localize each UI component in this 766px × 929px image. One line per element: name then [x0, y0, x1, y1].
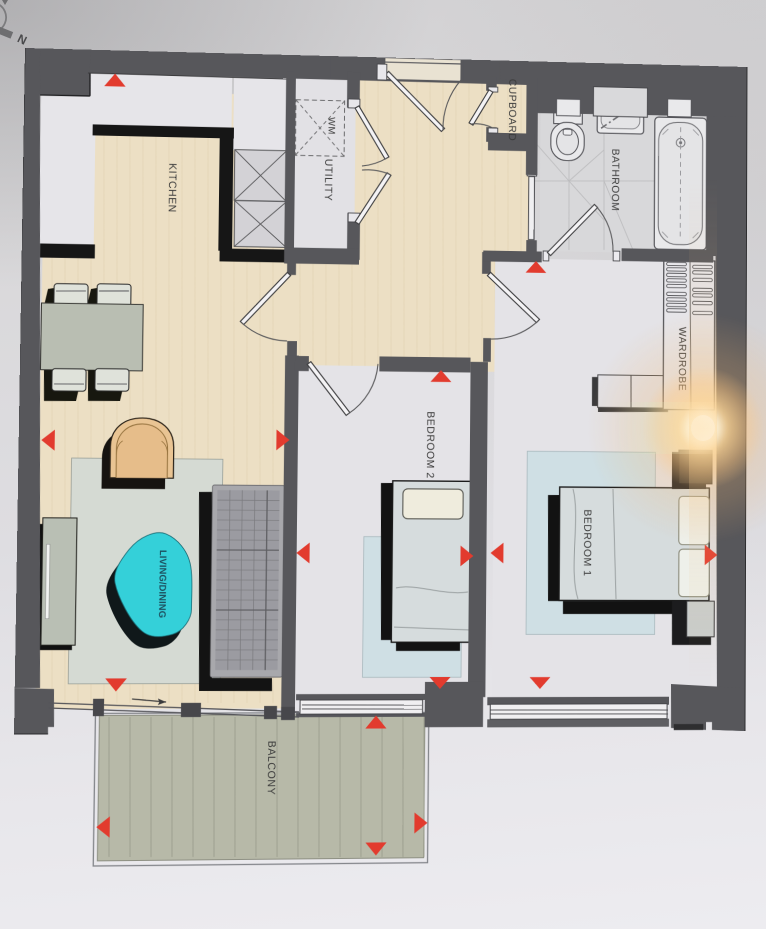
svg-text:KITCHEN: KITCHEN	[166, 163, 179, 213]
svg-text:WARDROBE: WARDROBE	[676, 327, 688, 391]
svg-text:BEDROOM 2: BEDROOM 2	[424, 411, 436, 479]
svg-text:LIVING/DINING: LIVING/DINING	[156, 550, 168, 618]
svg-text:WM: WM	[325, 117, 336, 135]
svg-text:UTILITY: UTILITY	[322, 159, 334, 202]
svg-text:BALCONY: BALCONY	[265, 741, 278, 796]
svg-text:BEDROOM 1: BEDROOM 1	[581, 509, 593, 576]
svg-text:BATHROOM: BATHROOM	[609, 149, 621, 212]
svg-text:CUPBOARD: CUPBOARD	[506, 79, 518, 142]
